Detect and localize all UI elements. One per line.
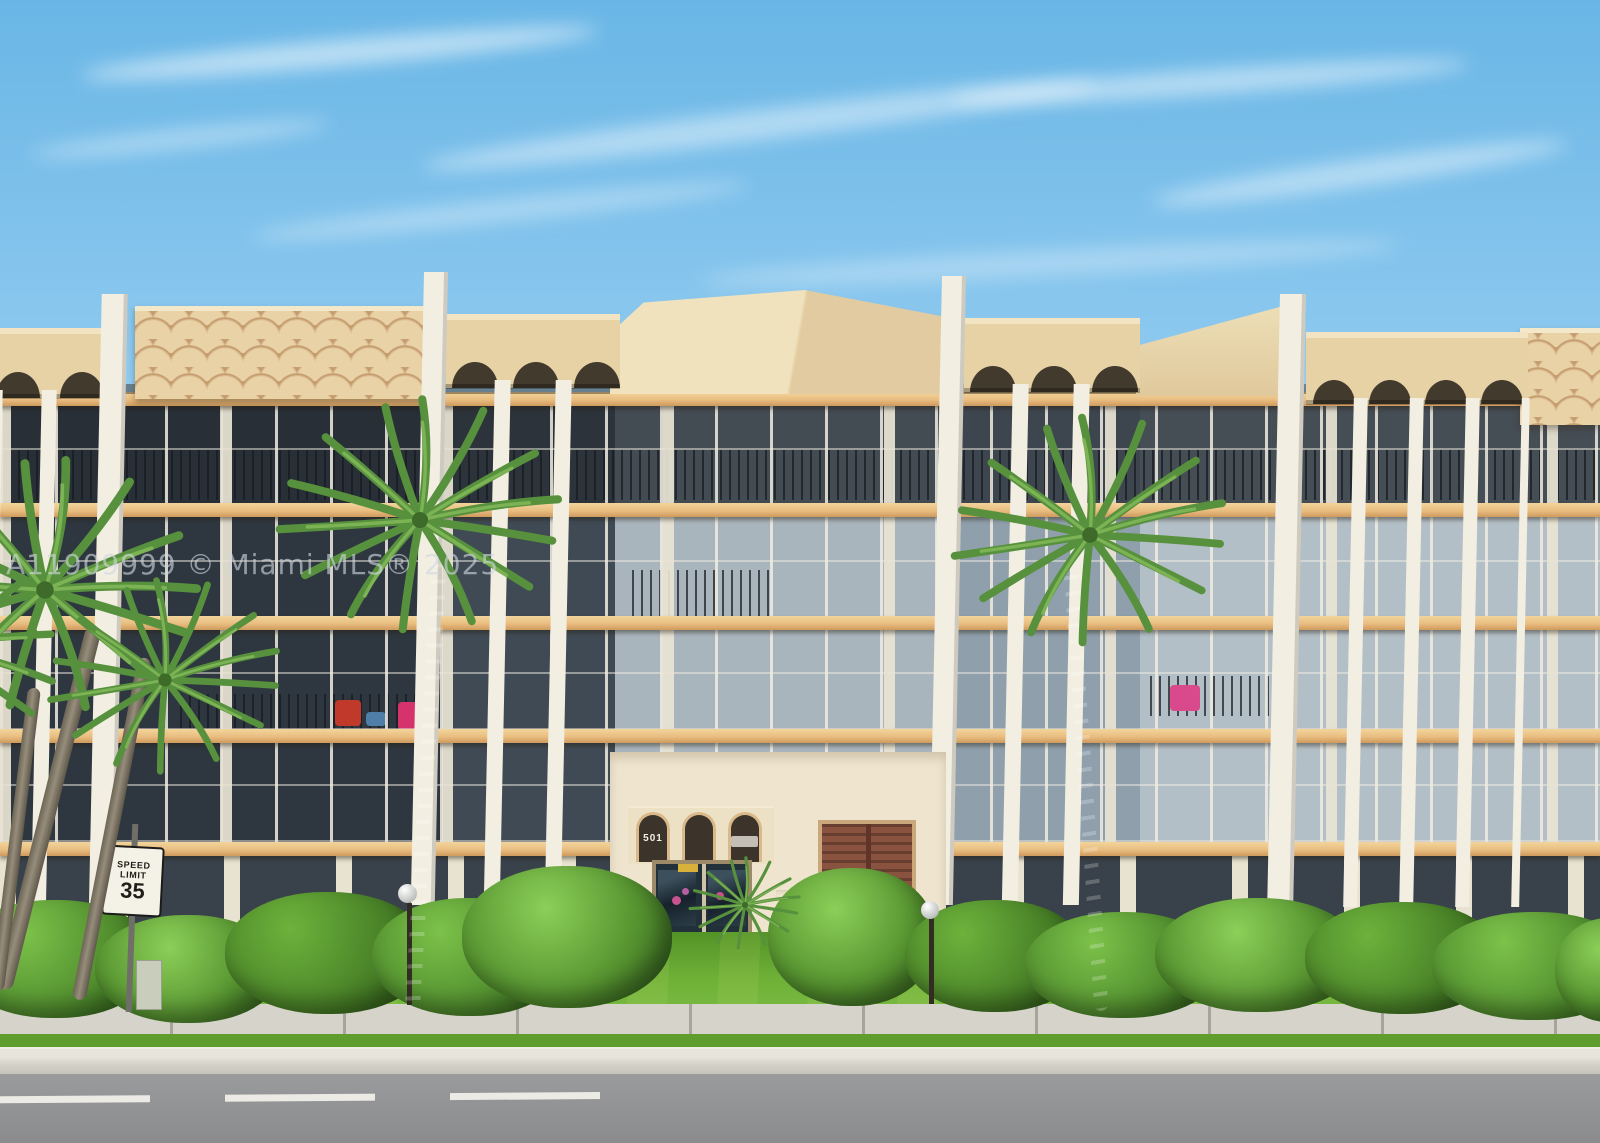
mls-watermark: A11909999 © Miami MLS® 2025 [6, 548, 499, 581]
palm-tree-left-cluster [0, 430, 310, 760]
palm-tree-center [280, 390, 560, 650]
arch-colonnade-right [1278, 294, 1528, 907]
utility-box [136, 960, 162, 1010]
speed-limit-value: 35 [120, 879, 146, 902]
lamp-post [929, 916, 934, 1004]
hedge [462, 866, 672, 1008]
address-number: 501 [636, 833, 670, 844]
scalloped-tile-roof-left [135, 306, 427, 399]
road [0, 1074, 1600, 1143]
listing-photo: 501 SPEED LIMIT 35 [0, 0, 1600, 1143]
lamp-globe [921, 901, 939, 919]
fan-palm-entrance [690, 845, 800, 945]
grass-verge [0, 1034, 1600, 1047]
palm-tree-right [945, 405, 1235, 665]
curb-gutter [0, 1047, 1600, 1076]
scalloped-tile-roof-right [1520, 328, 1600, 425]
